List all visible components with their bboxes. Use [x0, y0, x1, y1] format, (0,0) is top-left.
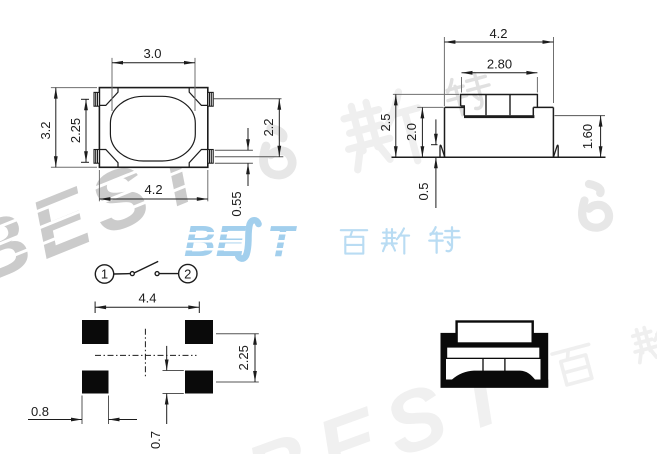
- svg-text:2.5: 2.5: [378, 113, 393, 131]
- svg-text:0.5: 0.5: [416, 182, 431, 200]
- svg-text:2: 2: [184, 266, 191, 281]
- svg-text:1: 1: [101, 267, 108, 282]
- svg-text:2.25: 2.25: [236, 345, 251, 370]
- svg-text:0.55: 0.55: [229, 191, 244, 216]
- svg-text:2.25: 2.25: [68, 118, 83, 143]
- svg-text:1.60: 1.60: [580, 124, 595, 149]
- svg-text:0.8: 0.8: [31, 404, 49, 419]
- svg-text:4.2: 4.2: [489, 26, 507, 41]
- svg-text:4.2: 4.2: [145, 182, 163, 197]
- svg-text:3.0: 3.0: [143, 46, 161, 61]
- svg-text:0.7: 0.7: [148, 431, 163, 449]
- svg-text:2.2: 2.2: [261, 118, 276, 136]
- svg-text:4.4: 4.4: [138, 291, 156, 306]
- svg-text:3.2: 3.2: [38, 121, 53, 139]
- svg-text:2.0: 2.0: [404, 123, 419, 141]
- svg-text:2.80: 2.80: [487, 57, 512, 72]
